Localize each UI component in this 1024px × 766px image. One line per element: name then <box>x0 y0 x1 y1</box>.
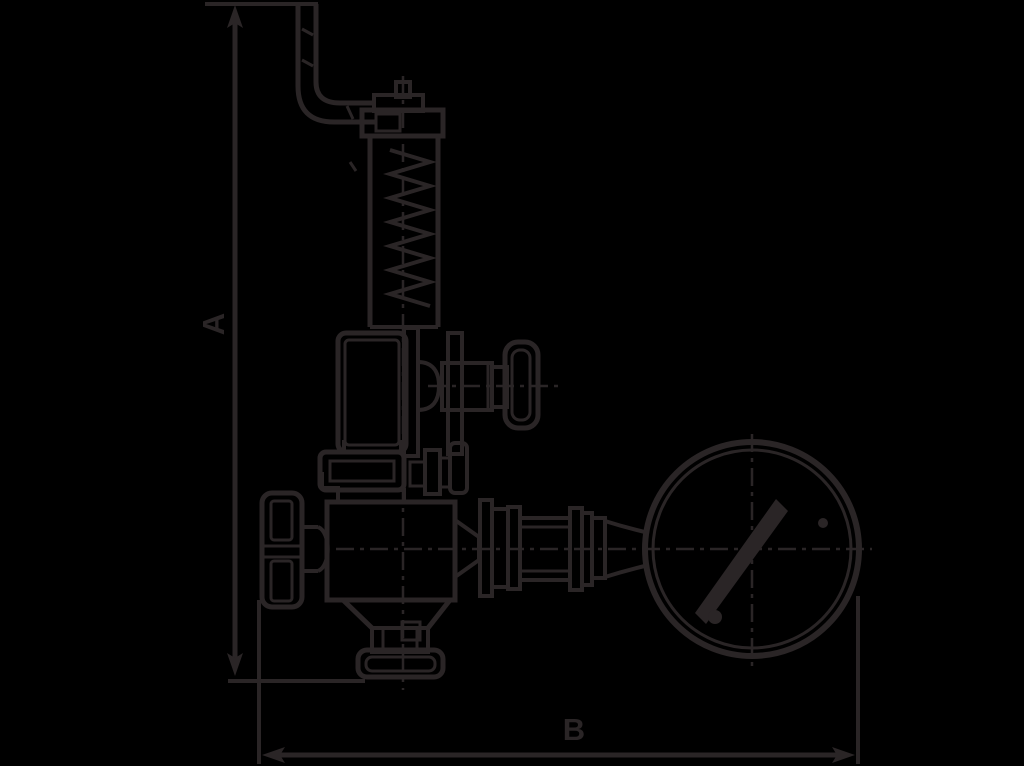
valve-technical-drawing <box>0 0 1024 766</box>
flange-piece-2 <box>425 450 440 494</box>
lever-tick-2 <box>302 60 313 66</box>
test-lever <box>298 4 376 122</box>
flange-end-cap <box>450 443 467 493</box>
handwheel-spoke-gap-bottom <box>271 561 292 601</box>
lever-tick-3 <box>347 106 353 119</box>
upper-body-case <box>338 333 406 452</box>
flange-inner <box>330 461 394 481</box>
flange-piece-1 <box>410 462 425 486</box>
lever-tick-1 <box>302 29 313 35</box>
upper-body-column-right <box>448 333 462 454</box>
gauge-connector-bottom <box>605 565 649 577</box>
lower-body-block <box>327 502 455 600</box>
lower-body-taper-right <box>428 600 450 628</box>
cap-block-slot <box>376 114 400 131</box>
spring-coil <box>390 150 430 306</box>
housing-weld-tick <box>350 162 356 171</box>
lever-inner-edge <box>316 4 376 103</box>
gauge-needle <box>695 499 788 624</box>
gauge-connector-top <box>605 521 649 533</box>
gauge-pivot-dot <box>708 610 722 624</box>
outlet-union-nut <box>358 650 443 677</box>
handwheel-rim <box>262 493 302 607</box>
gauge-mark-dot <box>818 518 828 528</box>
lower-body <box>327 490 479 652</box>
handwheel-spoke-gap-top <box>271 501 292 540</box>
upper-body-case-inner <box>345 340 399 445</box>
dimension-a-label: A <box>197 307 231 341</box>
drawing-canvas: A B <box>0 0 1024 766</box>
body-flange <box>320 440 467 494</box>
spring-housing <box>350 136 438 327</box>
lower-body-taper-left <box>343 600 372 628</box>
flange-outer <box>320 452 404 490</box>
union-nut-outer <box>358 650 443 677</box>
union-nut-inner <box>366 657 435 671</box>
dimension-a-callout <box>205 4 365 681</box>
dimension-b-label: B <box>557 713 591 747</box>
